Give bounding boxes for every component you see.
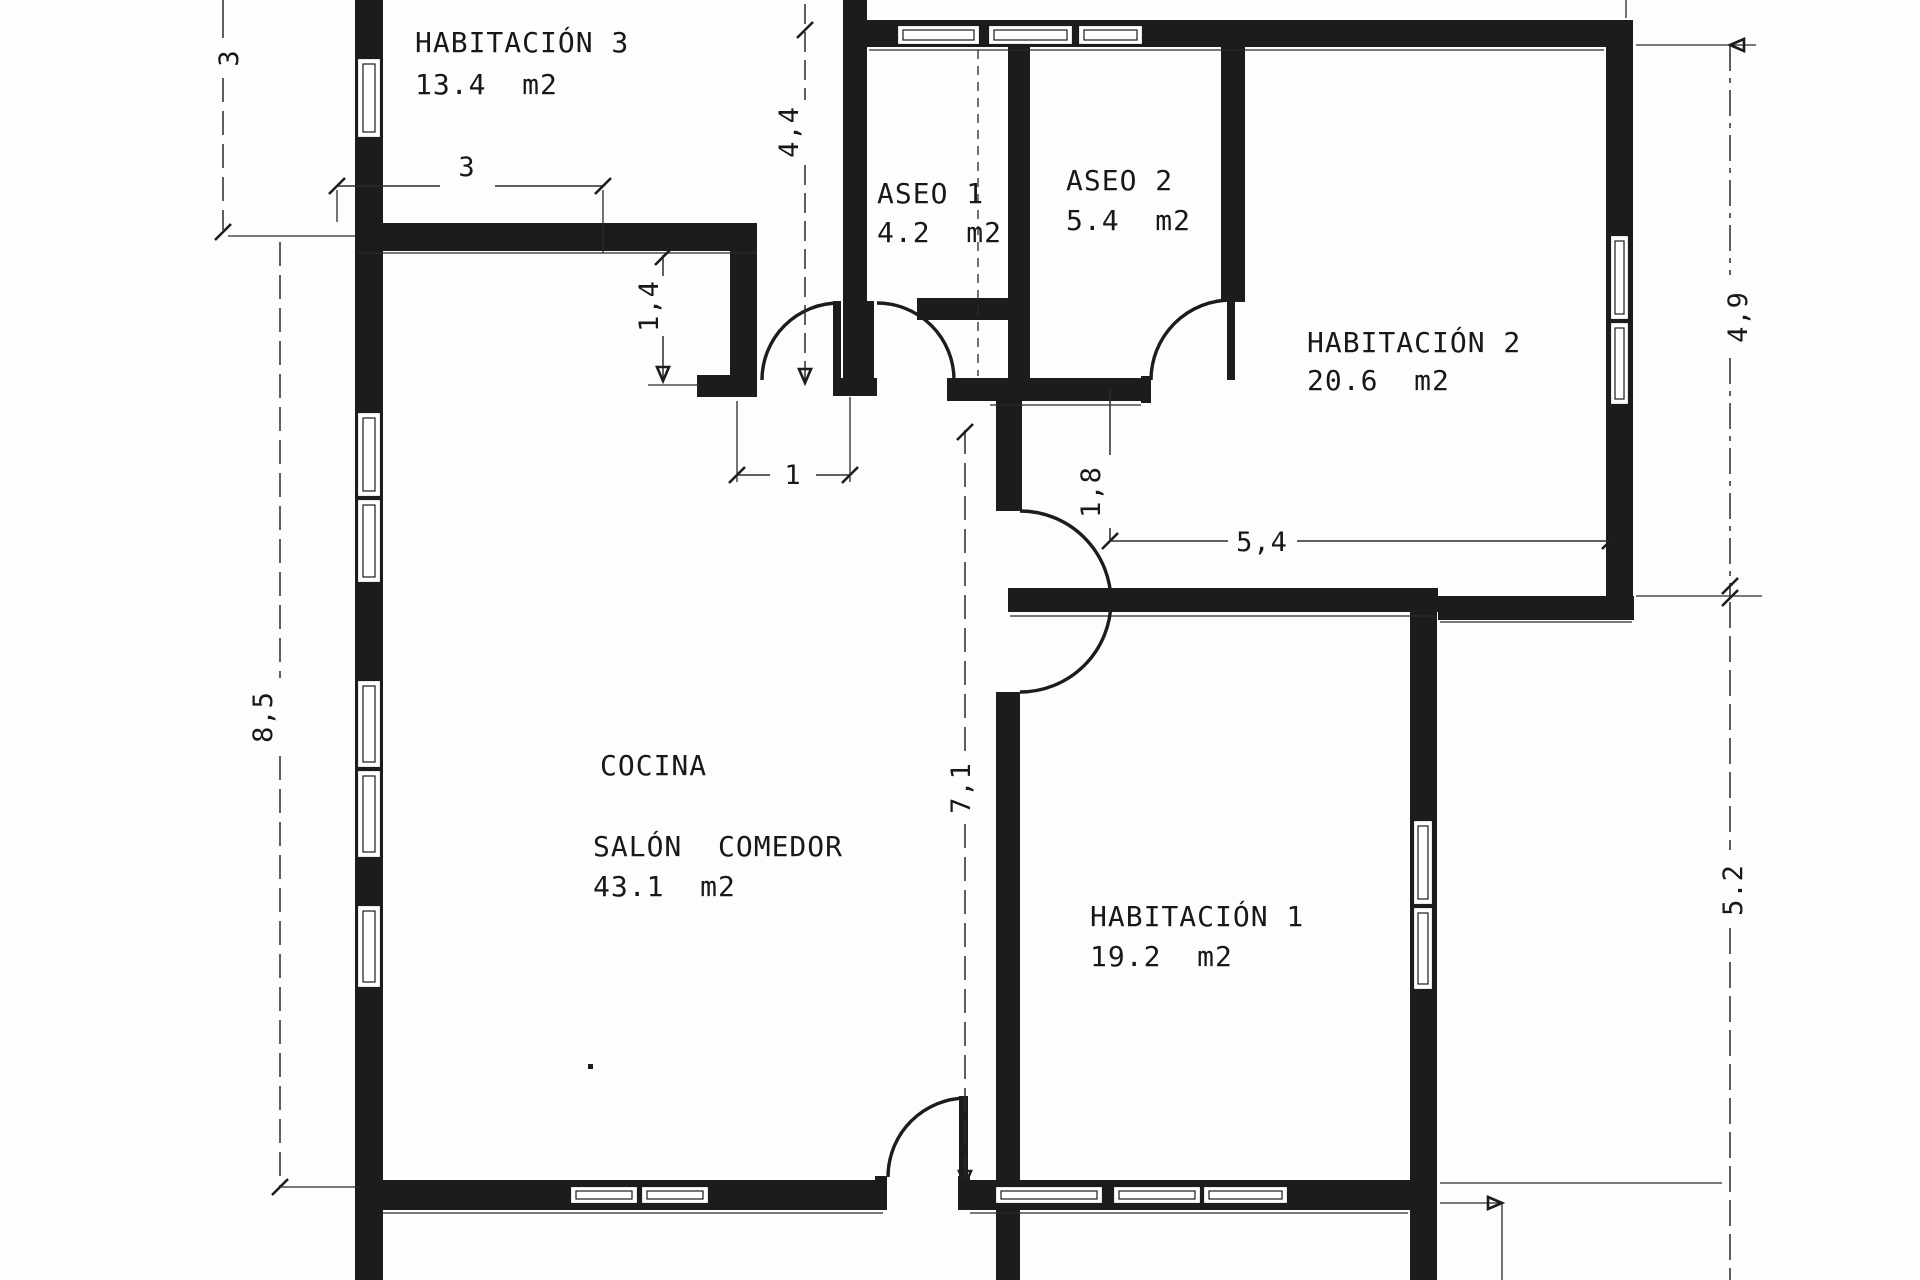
wall-left-outer — [355, 0, 383, 1280]
wall-kitchen-top — [355, 223, 757, 251]
wall-corridor-left — [730, 223, 757, 397]
window-top-hab2 — [1078, 25, 1143, 45]
dim-center-height: 7,1 — [946, 762, 977, 814]
floor-plan-page: HABITACIÓN 3 13.4 m2 ASEO 1 4.2 m2 ASEO … — [0, 0, 1920, 1280]
wall-aseo1-bottom — [917, 298, 1010, 320]
wall-hab2-bottom-right — [1438, 596, 1634, 620]
label-salon: SALÓN COMEDOR — [593, 829, 843, 863]
window-left-salon-lower — [357, 680, 381, 858]
dim-kitchen-jog: 1,4 — [634, 280, 665, 332]
window-left-hab3 — [357, 58, 381, 138]
area-aseo1: 4.2 m2 — [877, 216, 1002, 249]
dim-right-upper-height: 4,9 — [1723, 291, 1754, 343]
door-leaf-hab2 — [1227, 300, 1235, 380]
dim-top-left-height: 3 — [214, 49, 245, 66]
label-aseo1: ASEO 1 — [877, 177, 984, 210]
door-leaf-corridor — [833, 301, 841, 380]
door-arc-hab2 — [1151, 300, 1231, 380]
label-cocina: COCINA — [600, 749, 707, 782]
window-hab1-right — [1413, 820, 1433, 990]
dim-right-lower-height: 5.2 — [1718, 864, 1749, 916]
walls — [355, 0, 1634, 1280]
window-right-hab2 — [1610, 235, 1629, 405]
wall-hab3-aseo1 — [843, 0, 867, 382]
door-leaf-bottom — [959, 1096, 968, 1179]
area-habitacion1: 19.2 m2 — [1090, 940, 1233, 973]
wall-hall-jamb — [1141, 376, 1151, 403]
wall-hall-top-right — [947, 378, 1151, 401]
window-top-aseo2 — [988, 25, 1073, 45]
dim-hab3-width: 3 — [458, 152, 475, 183]
dim-door-width: 1 — [784, 460, 801, 491]
window-top-aseo1 — [897, 25, 980, 45]
label-habitacion1: HABITACIÓN 1 — [1090, 899, 1304, 933]
area-habitacion3: 13.4 m2 — [415, 68, 558, 101]
dim-corridor-height: 4,4 — [774, 106, 805, 158]
window-left-salon-upper — [357, 412, 381, 583]
window-left-bottom — [357, 905, 381, 988]
floor-plan-drawing: HABITACIÓN 3 13.4 m2 ASEO 1 4.2 m2 ASEO … — [0, 0, 1920, 1280]
wall-hall-left-lower — [996, 397, 1022, 511]
wall-aseo1-aseo2 — [1008, 40, 1030, 398]
label-habitacion3: HABITACIÓN 3 — [415, 25, 629, 59]
area-aseo2: 5.4 m2 — [1066, 204, 1191, 237]
wall-bottom-door-jamb-left — [875, 1176, 887, 1210]
wall-hall-stub-left — [697, 375, 757, 397]
dimension-lines — [215, 0, 1762, 1280]
wall-aseo2-hab2 — [1221, 40, 1245, 302]
dim-hall-width: 1,8 — [1076, 466, 1107, 518]
dim-hab2-width: 5,4 — [1236, 527, 1288, 558]
wall-hab2-bottom-left — [1008, 588, 1438, 612]
label-habitacion2: HABITACIÓN 2 — [1307, 325, 1521, 359]
door-leaf-aseo1 — [866, 301, 874, 380]
door-arc-bottom — [888, 1098, 966, 1177]
area-habitacion2: 20.6 m2 — [1307, 364, 1450, 397]
window-bottom-hab1 — [995, 1186, 1288, 1204]
ink-dot — [588, 1064, 593, 1069]
wall-hab3-aseo1-jamb — [833, 378, 877, 396]
dim-left-height: 8,5 — [248, 691, 279, 743]
label-aseo2: ASEO 2 — [1066, 164, 1173, 197]
room-labels: HABITACIÓN 3 13.4 m2 ASEO 1 4.2 m2 ASEO … — [415, 25, 1521, 973]
area-salon: 43.1 m2 — [593, 870, 736, 903]
